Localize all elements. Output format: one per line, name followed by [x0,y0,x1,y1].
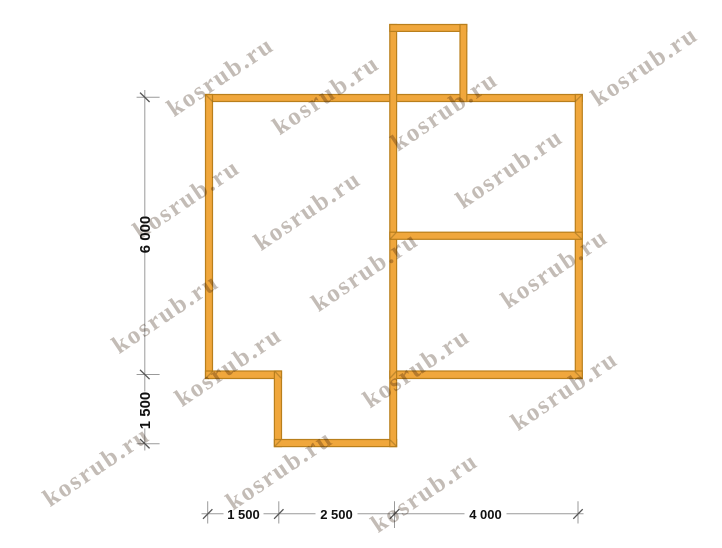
svg-text:4 000: 4 000 [469,507,502,522]
svg-text:2 500: 2 500 [320,507,353,522]
